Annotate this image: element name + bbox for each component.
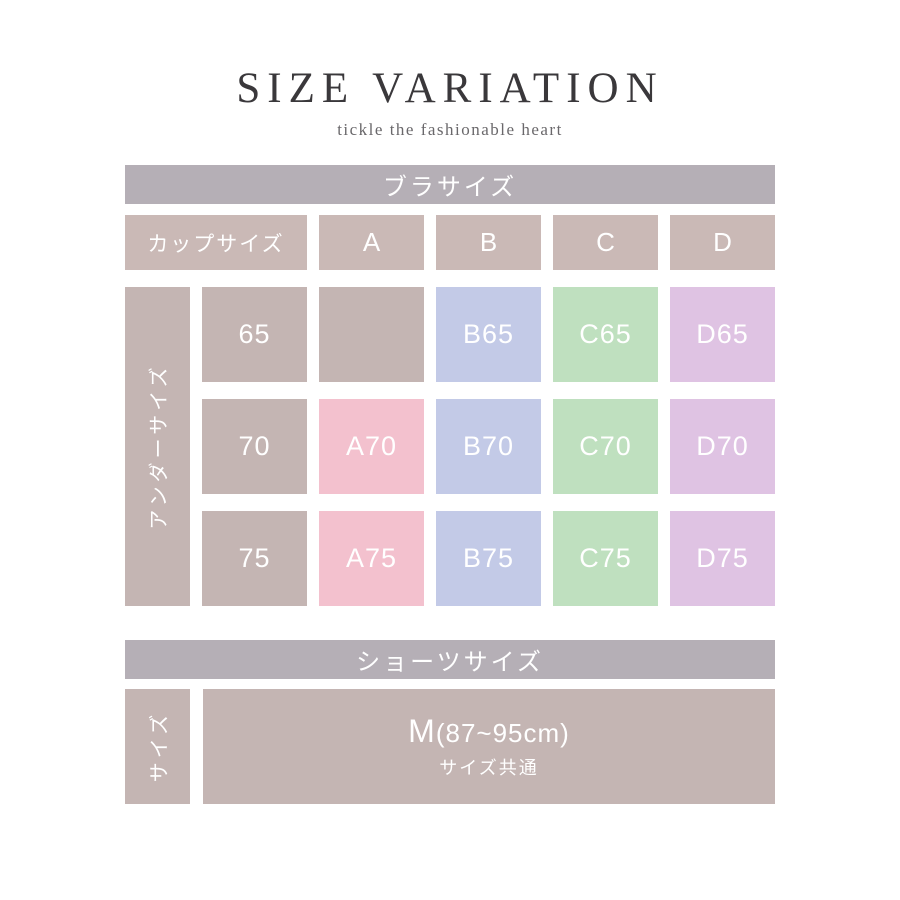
bra-size-cell-c65: C65: [553, 287, 658, 382]
bra-size-cell-b70: B70: [436, 399, 541, 494]
bra-size-cell-d70: D70: [670, 399, 775, 494]
shorts-size-section-header: ショーツサイズ: [125, 640, 775, 679]
cup-column-header-b: B: [436, 215, 541, 270]
shorts-size-table: サイズ M (87~95cm) サイズ共通: [125, 689, 775, 804]
bra-size-cell-b75: B75: [436, 511, 541, 606]
bra-size-cell-c70: C70: [553, 399, 658, 494]
under-size-row-header-75: 75: [202, 511, 307, 606]
cup-column-header-c: C: [553, 215, 658, 270]
shorts-size-axis-label: サイズ: [143, 711, 172, 782]
shorts-size-note: サイズ共通: [439, 754, 538, 780]
cup-column-header-a: A: [319, 215, 424, 270]
shorts-size-line: M (87~95cm): [408, 713, 570, 750]
bra-size-table: カップサイズ A B C D アンダーサイズ 65 B65 C65 D65 70…: [125, 215, 775, 606]
under-size-row-header-65: 65: [202, 287, 307, 382]
under-size-axis-cell: アンダーサイズ: [125, 287, 190, 606]
size-variation-page: SIZE VARIATION tickle the fashionable he…: [0, 0, 900, 900]
bra-size-cell-d75: D75: [670, 511, 775, 606]
shorts-size-range: (87~95cm): [436, 718, 570, 749]
under-size-row-header-70: 70: [202, 399, 307, 494]
cup-column-header-d: D: [670, 215, 775, 270]
shorts-size-axis-cell: サイズ: [125, 689, 190, 804]
bra-size-cell-c75: C75: [553, 511, 658, 606]
shorts-size-value-cell: M (87~95cm) サイズ共通: [203, 689, 775, 804]
bra-size-cell-a75: A75: [319, 511, 424, 606]
bra-size-section-header: ブラサイズ: [125, 165, 775, 204]
bra-size-cell-a65-empty: [319, 287, 424, 382]
bra-size-cell-d65: D65: [670, 287, 775, 382]
shorts-size-main: M: [408, 713, 436, 750]
bra-size-cell-a70: A70: [319, 399, 424, 494]
page-subtitle: tickle the fashionable heart: [0, 120, 900, 140]
under-size-axis-label: アンダーサイズ: [143, 363, 172, 529]
page-title: SIZE VARIATION: [0, 64, 900, 113]
bra-size-cell-b65: B65: [436, 287, 541, 382]
cup-size-corner-label: カップサイズ: [125, 215, 307, 270]
